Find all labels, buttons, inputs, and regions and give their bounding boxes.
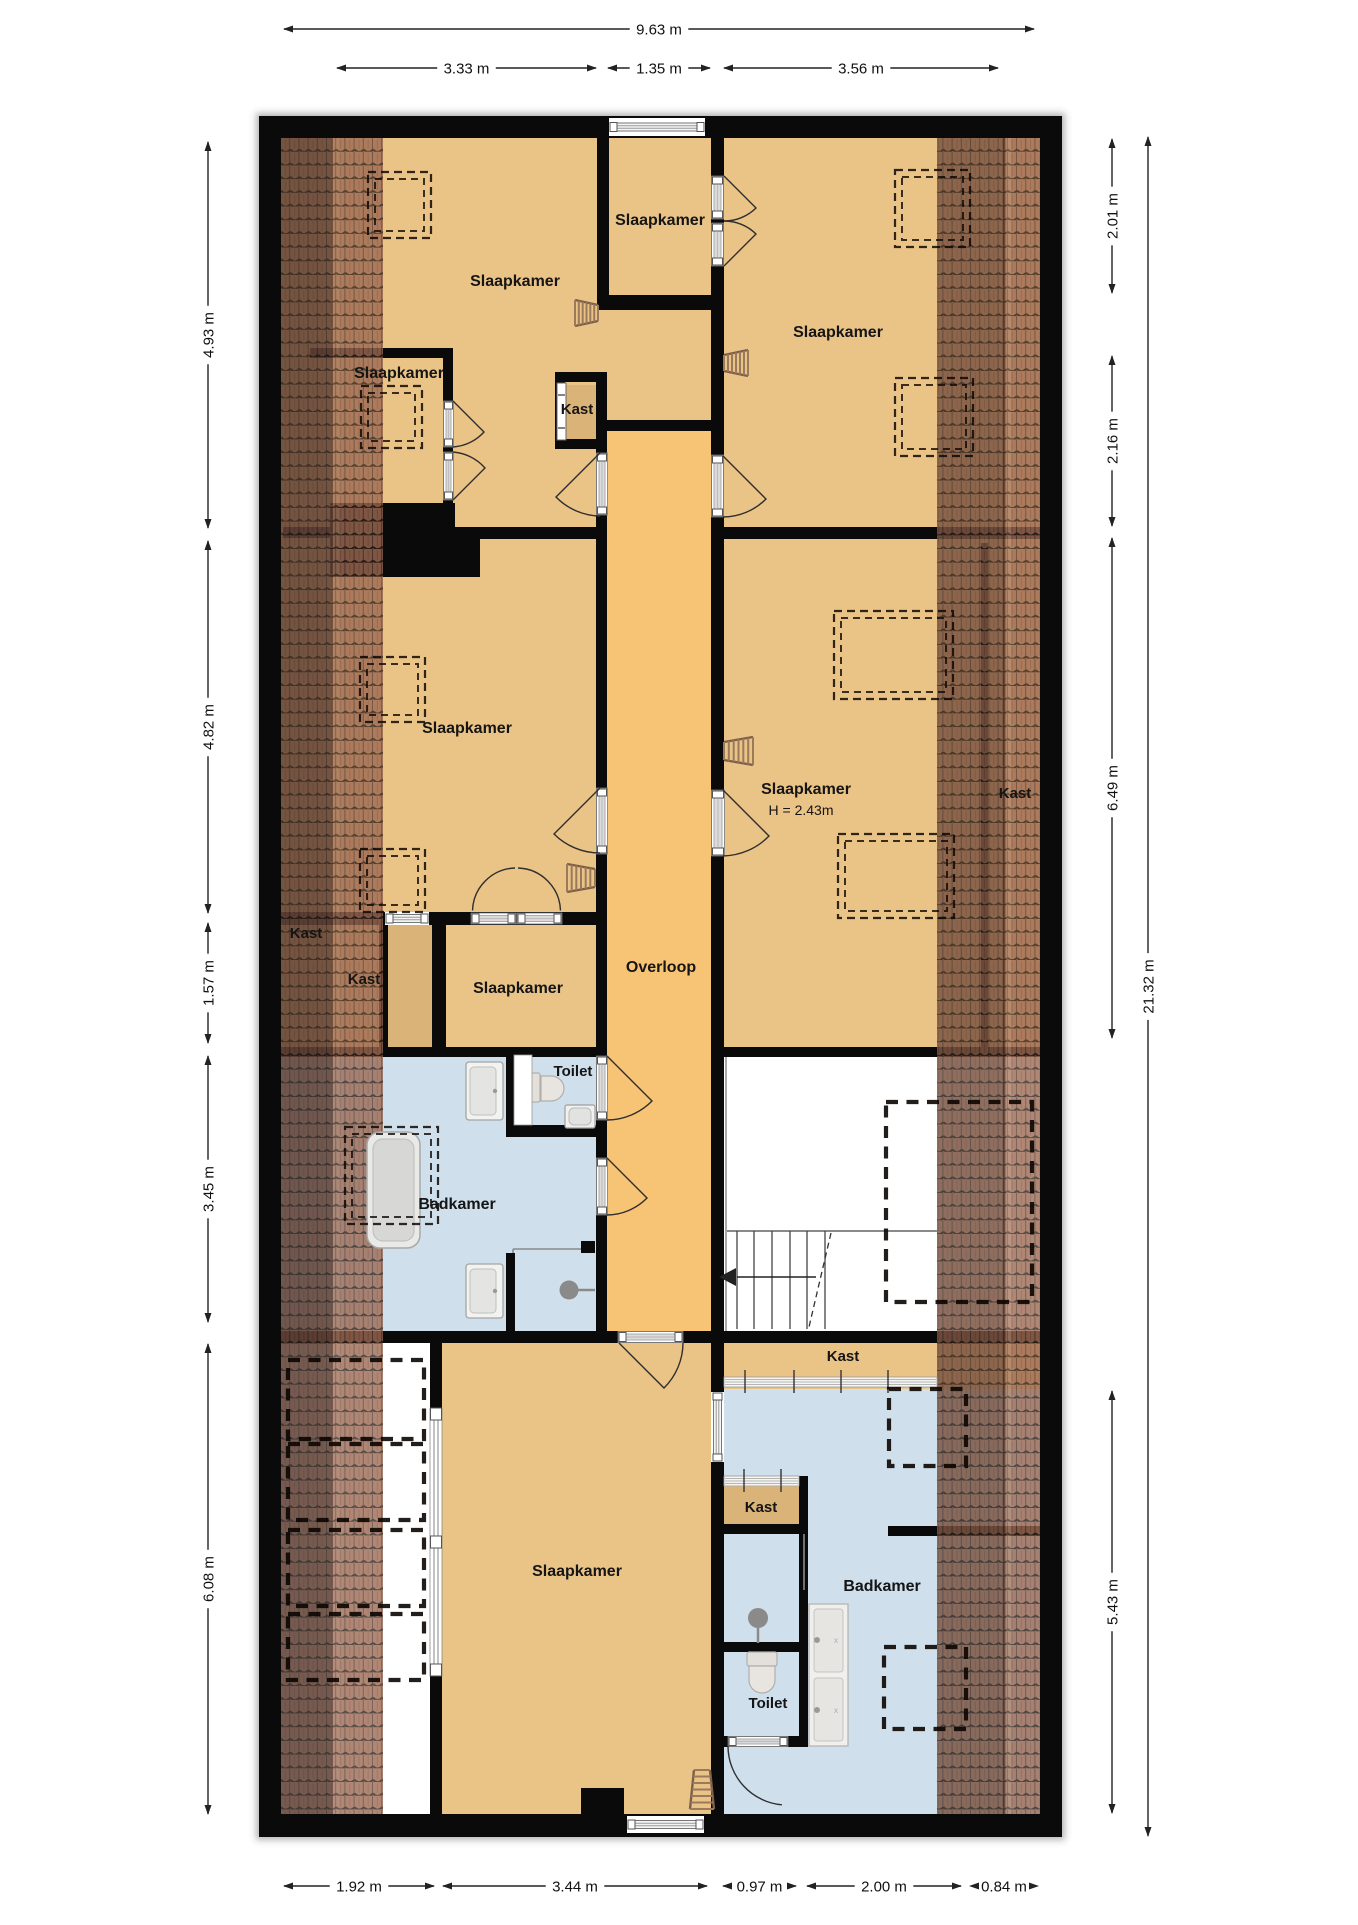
svg-text:Slaapkamer: Slaapkamer bbox=[615, 212, 705, 229]
svg-text:Slaapkamer: Slaapkamer bbox=[473, 980, 563, 997]
svg-text:x: x bbox=[834, 1706, 838, 1715]
svg-text:21.32 m: 21.32 m bbox=[1141, 959, 1158, 1013]
svg-text:Toilet: Toilet bbox=[554, 1063, 593, 1080]
svg-text:Kast: Kast bbox=[290, 925, 323, 942]
svg-text:Kast: Kast bbox=[745, 1499, 778, 1516]
svg-text:1.35 m: 1.35 m bbox=[636, 61, 682, 78]
svg-text:Slaapkamer: Slaapkamer bbox=[532, 1563, 622, 1580]
svg-text:Kast: Kast bbox=[561, 401, 594, 418]
svg-text:0.97 m: 0.97 m bbox=[737, 1879, 783, 1896]
svg-text:Kast: Kast bbox=[999, 785, 1032, 802]
svg-text:2.16 m: 2.16 m bbox=[1105, 418, 1122, 464]
svg-text:2.01 m: 2.01 m bbox=[1105, 193, 1122, 239]
svg-text:6.08 m: 6.08 m bbox=[201, 1556, 218, 1602]
svg-text:3.45 m: 3.45 m bbox=[201, 1166, 218, 1212]
svg-text:Kast: Kast bbox=[348, 971, 381, 988]
svg-text:6.49 m: 6.49 m bbox=[1105, 765, 1122, 811]
svg-text:Kast: Kast bbox=[827, 1348, 860, 1365]
svg-text:4.93 m: 4.93 m bbox=[201, 312, 218, 358]
svg-text:Slaapkamer: Slaapkamer bbox=[793, 324, 883, 341]
svg-text:Toilet: Toilet bbox=[749, 1695, 788, 1712]
svg-text:3.56 m: 3.56 m bbox=[838, 61, 884, 78]
svg-text:2.00 m: 2.00 m bbox=[861, 1879, 907, 1896]
svg-text:Badkamer: Badkamer bbox=[843, 1578, 920, 1595]
svg-text:1.57 m: 1.57 m bbox=[201, 960, 218, 1006]
svg-text:5.43 m: 5.43 m bbox=[1105, 1579, 1122, 1625]
svg-text:Slaapkamer: Slaapkamer bbox=[354, 365, 444, 382]
svg-text:Slaapkamer: Slaapkamer bbox=[470, 273, 560, 290]
svg-text:x: x bbox=[834, 1636, 838, 1645]
svg-text:1.92 m: 1.92 m bbox=[336, 1879, 382, 1896]
svg-text:3.33 m: 3.33 m bbox=[444, 61, 490, 78]
svg-text:Slaapkamer: Slaapkamer bbox=[761, 781, 851, 798]
svg-text:Badkamer: Badkamer bbox=[418, 1196, 495, 1213]
svg-text:0.84 m: 0.84 m bbox=[981, 1879, 1027, 1896]
svg-text:4.82 m: 4.82 m bbox=[201, 704, 218, 750]
svg-text:3.44 m: 3.44 m bbox=[552, 1879, 598, 1896]
svg-text:9.63 m: 9.63 m bbox=[636, 22, 682, 39]
svg-text:H = 2.43m: H = 2.43m bbox=[769, 802, 834, 818]
svg-text:Overloop: Overloop bbox=[626, 959, 696, 976]
svg-text:Slaapkamer: Slaapkamer bbox=[422, 720, 512, 737]
